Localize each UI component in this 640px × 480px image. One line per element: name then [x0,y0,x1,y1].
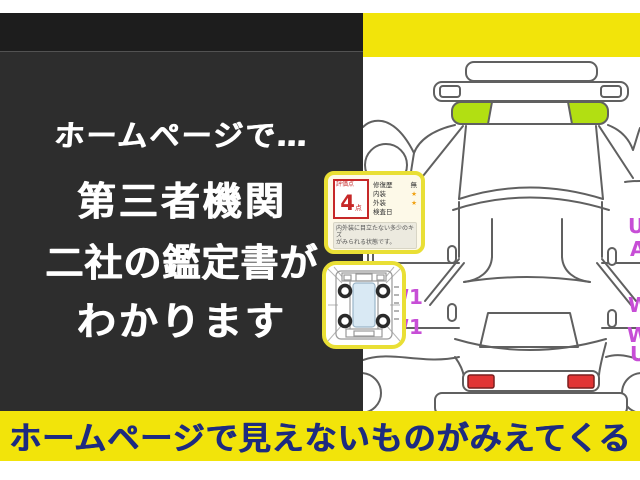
tail-light-right [568,375,594,388]
tailgate-recess [480,313,578,347]
score-unit: 点 [355,204,362,212]
rear-wheel-arch-left [363,373,381,412]
underbody-side-ticks [394,287,399,319]
headline-line-4: わかります [0,291,363,347]
score-details: 修復歴無 内装★ 外装★ 検査日 [373,179,417,219]
wheel-front-right [378,286,389,297]
front-bumper [466,62,597,81]
wheel-rear-right [378,316,389,327]
damage-mark-u-1: U [628,214,640,238]
door-handle-right-front [608,248,616,265]
bottom-banner: ホームページで見えないものがみえてくる [0,411,640,461]
inspection-score-card: 評価点 4点 修復歴無 内装★ 外装★ 検査日 内外装に目立たない多少のキズ が… [324,171,425,254]
left-quarter-curve [455,357,464,377]
damage-mark-w-1: W [628,293,640,317]
headline-top-band [0,13,363,52]
used-car-promo-image: ホームページで… 第三者機関 二社の鑑定書が わかります [0,0,640,480]
rear-lower-bumper [435,393,627,412]
headline-line-3: 二社の鑑定書が [0,232,363,287]
left-rocker-wave [363,356,459,360]
front-grille-bar [434,82,628,101]
tail-light-left [468,375,494,388]
door-handle-left-rear [448,304,456,321]
headlight-left [440,86,460,97]
underbody-diagram-card [322,261,406,349]
door-handle-left-front [448,246,456,263]
door-handle-right-rear [608,310,616,327]
a-pillar-left [419,126,463,181]
underbody-floor-pan [353,283,375,327]
bottom-banner-text: ホームページで見えないものがみえてくる [9,413,631,459]
a-pillar-right [599,126,633,178]
windshield-left-edge [459,126,466,199]
right-quarter-curve [599,343,606,375]
score-note: 内外装に目立たない多少のキズ がみられる状態です。 [333,222,417,249]
headline-line-1: ホームページで… [0,111,365,155]
damage-mark-a: A [630,237,640,261]
score-detail-row: 検査日 [373,208,417,217]
underbody-diagram [326,265,402,345]
right-panel-top-line [625,181,640,182]
windshield-right-edge [596,126,603,199]
c-pillar-left [425,259,464,305]
diagram-yellow-band [363,13,640,57]
wheel-rear-left [340,316,351,327]
roof-front-arc [453,198,609,211]
score-detail-row: 修復歴無 [373,181,417,190]
damage-mark-u-2: U [630,342,640,366]
score-value: 4点 [335,189,367,222]
headline-line-2: 第三者機関 [0,171,363,227]
headlight-right [601,86,621,97]
score-label: 評価点 [336,182,354,188]
cowl-center-panel [488,102,572,124]
score-detail-row: 内装★ [373,190,417,199]
score-detail-row: 外装★ [373,199,417,208]
wheel-front-left [340,286,351,297]
rear-glass-bottom [464,277,590,282]
score-box: 評価点 4点 [333,179,369,219]
